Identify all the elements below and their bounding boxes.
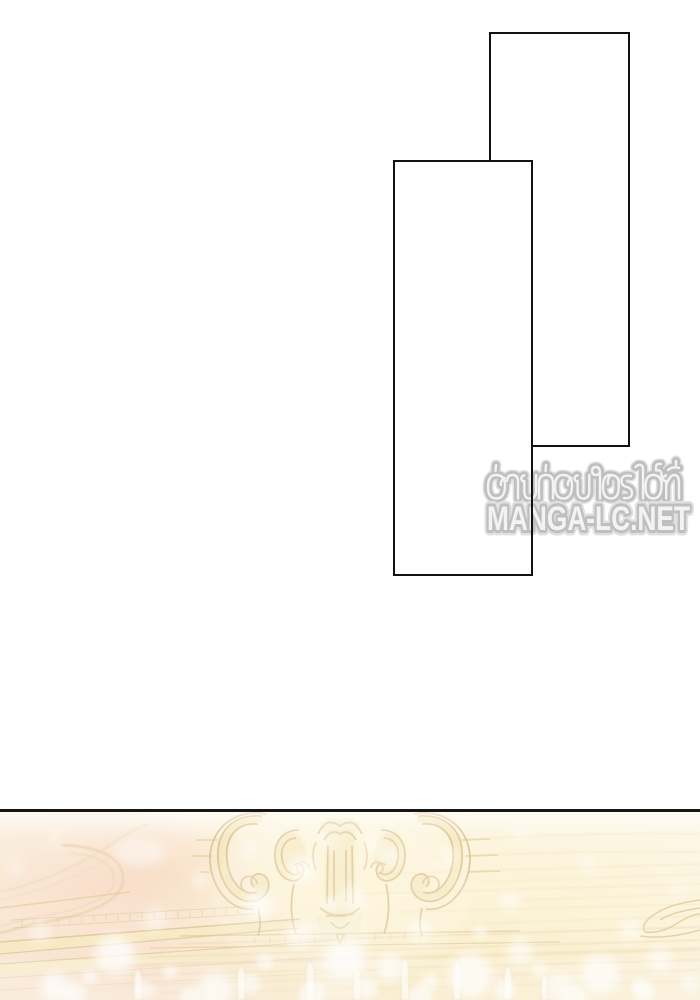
svg-text:MANGA-LC.NET: MANGA-LC.NET: [487, 500, 690, 538]
